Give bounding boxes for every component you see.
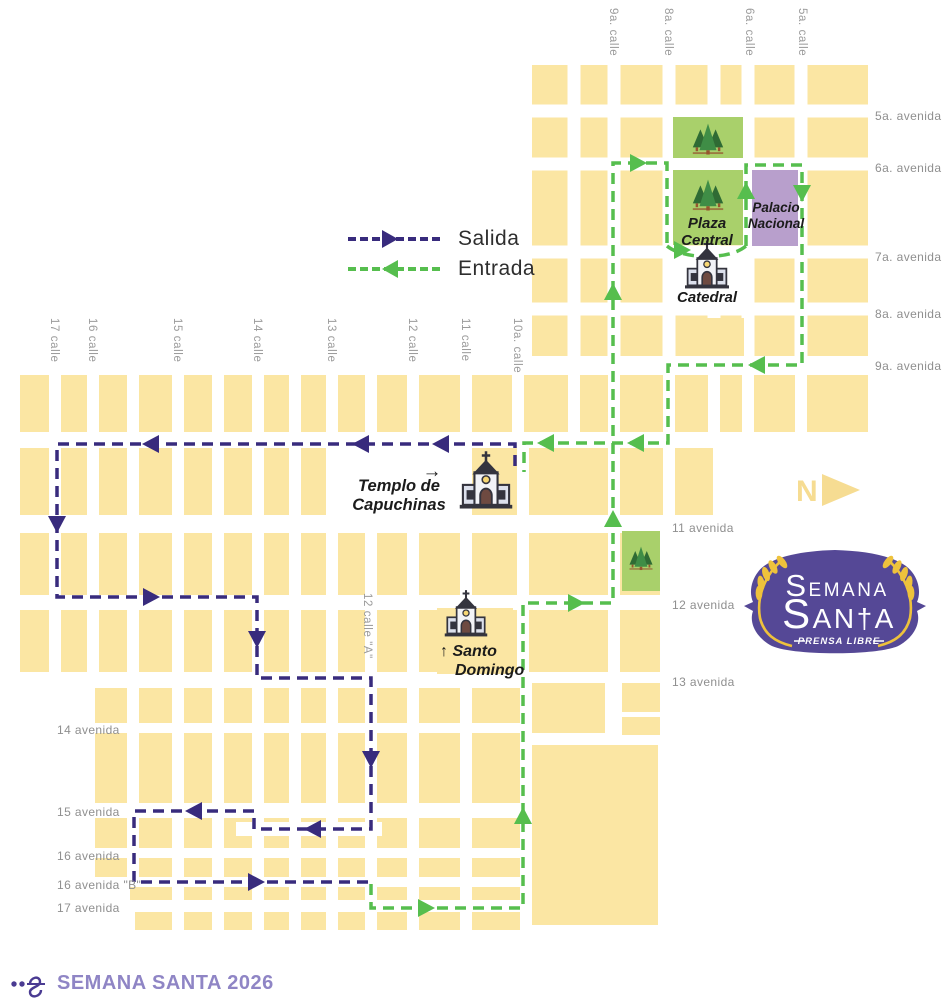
street <box>531 158 869 171</box>
legend-item-entrada: Entrada <box>348 256 535 282</box>
block-region <box>95 688 520 723</box>
street <box>252 447 264 516</box>
street <box>407 911 419 931</box>
street <box>289 374 301 433</box>
street <box>289 911 301 931</box>
salida-arrow-icon <box>382 230 398 248</box>
block-region <box>20 533 660 595</box>
street-label-calle: 14 calle <box>251 318 263 362</box>
street <box>568 374 580 433</box>
street-label-calle: 11 calle <box>459 318 471 362</box>
landmark-label-santo-domingo: ↑ Santo <box>440 643 497 660</box>
landmark-label-templo-de-capuchinas: Capuchinas <box>352 496 446 514</box>
street <box>407 687 419 724</box>
street <box>289 609 301 673</box>
street <box>127 732 139 804</box>
street <box>212 817 224 849</box>
street-label-avenida: 5a. avenida <box>875 109 941 123</box>
street <box>795 374 807 433</box>
city-block <box>622 683 660 712</box>
street-label-avenida: 17 avenida <box>57 901 120 915</box>
street <box>49 374 61 433</box>
street-label-avenida: 8a. avenida <box>875 307 941 321</box>
street-label-avenida: 16 avenida <box>57 849 120 863</box>
street <box>87 374 99 433</box>
street <box>365 532 377 596</box>
street <box>742 374 754 433</box>
street <box>172 817 184 849</box>
street <box>289 532 301 596</box>
compass-north: N <box>796 474 860 508</box>
street-label-avenida: 14 avenida <box>57 723 120 737</box>
street <box>252 857 264 878</box>
street <box>460 532 472 596</box>
street-label-calle: 15 calle <box>171 318 183 362</box>
footer: SEMANA SANTA 2026 <box>10 968 274 998</box>
street <box>127 532 139 596</box>
street <box>460 911 472 931</box>
route-arrow-icon <box>568 594 585 612</box>
flourish-icon <box>10 968 50 998</box>
street <box>252 374 264 433</box>
street <box>172 857 184 878</box>
street <box>460 857 472 878</box>
street <box>252 687 264 724</box>
street <box>460 374 472 433</box>
street <box>127 374 139 433</box>
footer-title: SEMANA SANTA 2026 <box>57 972 274 995</box>
street <box>212 857 224 878</box>
street <box>252 886 264 901</box>
street <box>407 732 419 804</box>
landmark-label-palacio-nacional: Nacional <box>748 216 805 231</box>
route-arrow-icon <box>48 516 66 533</box>
route-arrow-icon <box>514 807 532 824</box>
salida-route-sample <box>348 237 440 241</box>
street-label-calle: 10a. calle <box>511 318 523 373</box>
street-label-calle: 8a. calle <box>662 8 674 56</box>
street <box>407 532 419 596</box>
street-label-calle: 12 calle <box>406 318 418 362</box>
street <box>49 609 61 673</box>
street-label-calle: 5a. calle <box>796 8 808 56</box>
street <box>289 732 301 804</box>
street <box>608 374 620 433</box>
street <box>326 374 338 433</box>
pointer-arrow-glyph: → <box>423 461 442 482</box>
street <box>326 532 338 596</box>
route-arrow-icon <box>185 802 202 820</box>
landmark-label-plaza-central: Central <box>681 232 734 249</box>
compass-letter: N <box>796 475 818 508</box>
street <box>407 609 419 673</box>
street <box>212 532 224 596</box>
street <box>407 374 419 433</box>
street <box>212 687 224 724</box>
landmark-label-santo-domingo: Domingo <box>455 662 525 679</box>
legend-label-salida: Salida <box>458 227 519 251</box>
block-region <box>95 733 520 803</box>
street <box>326 609 338 673</box>
street-label-avenida: 11 avenida <box>672 521 734 535</box>
street <box>212 374 224 433</box>
street <box>172 609 184 673</box>
block-region <box>20 610 660 672</box>
street <box>172 911 184 931</box>
street <box>407 817 419 849</box>
street <box>172 732 184 804</box>
block-region <box>20 375 868 432</box>
street <box>252 732 264 804</box>
street <box>365 374 377 433</box>
street <box>663 447 675 516</box>
street-label-avenida: 9a. avenida <box>875 359 941 373</box>
street <box>127 609 139 673</box>
street <box>407 886 419 901</box>
street-label-calle: 13 calle <box>325 318 337 362</box>
street <box>172 687 184 724</box>
city-block <box>532 745 658 925</box>
street <box>460 817 472 849</box>
city-block <box>622 717 660 735</box>
legend: Salida Entrada <box>348 226 535 282</box>
street <box>365 857 377 878</box>
street <box>407 857 419 878</box>
street <box>289 857 301 878</box>
street <box>172 447 184 516</box>
street <box>460 687 472 724</box>
street <box>517 532 529 596</box>
street <box>365 911 377 931</box>
legend-item-salida: Salida <box>348 226 535 252</box>
street <box>87 447 99 516</box>
compass-arrow-icon <box>822 474 860 506</box>
street <box>212 447 224 516</box>
street <box>326 911 338 931</box>
street <box>212 911 224 931</box>
logo-semana-santa: SEMANASAN†APRENSA LIBRE <box>744 550 926 653</box>
street <box>49 532 61 596</box>
block-region <box>95 858 520 877</box>
street-label-calle: 6a. calle <box>743 8 755 56</box>
landmark-label-palacio-nacional: Palacio <box>752 200 799 215</box>
street-label-avenida: 15 avenida <box>57 805 120 819</box>
entrada-route-sample <box>348 267 440 271</box>
street <box>289 687 301 724</box>
street <box>252 911 264 931</box>
street <box>172 374 184 433</box>
street-label-calle: 9a. calle <box>607 8 619 56</box>
logo-subtitle: PRENSA LIBRE <box>798 636 880 647</box>
street-label-avenida: 6a. avenida <box>875 161 941 175</box>
street-label-avenida: 13 avenida <box>672 675 735 689</box>
street <box>87 532 99 596</box>
city-block <box>532 683 605 733</box>
street-label-avenida: 16 avenida "B" <box>57 878 141 892</box>
route-arrow-icon <box>748 356 765 374</box>
street <box>326 732 338 804</box>
street <box>708 374 720 433</box>
street <box>212 609 224 673</box>
street <box>460 886 472 901</box>
street-label-avenida: 7a. avenida <box>875 250 941 264</box>
street-label-calle: 16 calle <box>86 318 98 362</box>
street <box>326 886 338 901</box>
street-label-calle: 17 calle <box>48 318 60 362</box>
street-label-calle: 12 calle "A" <box>361 593 373 659</box>
street <box>460 732 472 804</box>
street <box>326 857 338 878</box>
landmark-label-plaza-central: Plaza <box>688 215 726 232</box>
street <box>289 886 301 901</box>
street <box>127 447 139 516</box>
procession-route-map: PlazaCentralPalacioNacionalCatedralTempl… <box>0 0 945 1000</box>
street <box>172 532 184 596</box>
street <box>608 609 620 673</box>
street <box>49 447 61 516</box>
legend-label-entrada: Entrada <box>458 257 535 281</box>
entrada-arrow-icon <box>382 260 398 278</box>
street <box>127 687 139 724</box>
landmark-label-catedral: Catedral <box>677 289 738 306</box>
street <box>87 609 99 673</box>
street <box>289 447 301 516</box>
street-label-avenida: 12 avenida <box>672 598 735 612</box>
city-block <box>678 318 744 356</box>
street <box>252 532 264 596</box>
street <box>531 105 869 118</box>
street <box>326 687 338 724</box>
street <box>512 374 524 433</box>
street <box>172 886 184 901</box>
street <box>212 732 224 804</box>
street <box>212 886 224 901</box>
